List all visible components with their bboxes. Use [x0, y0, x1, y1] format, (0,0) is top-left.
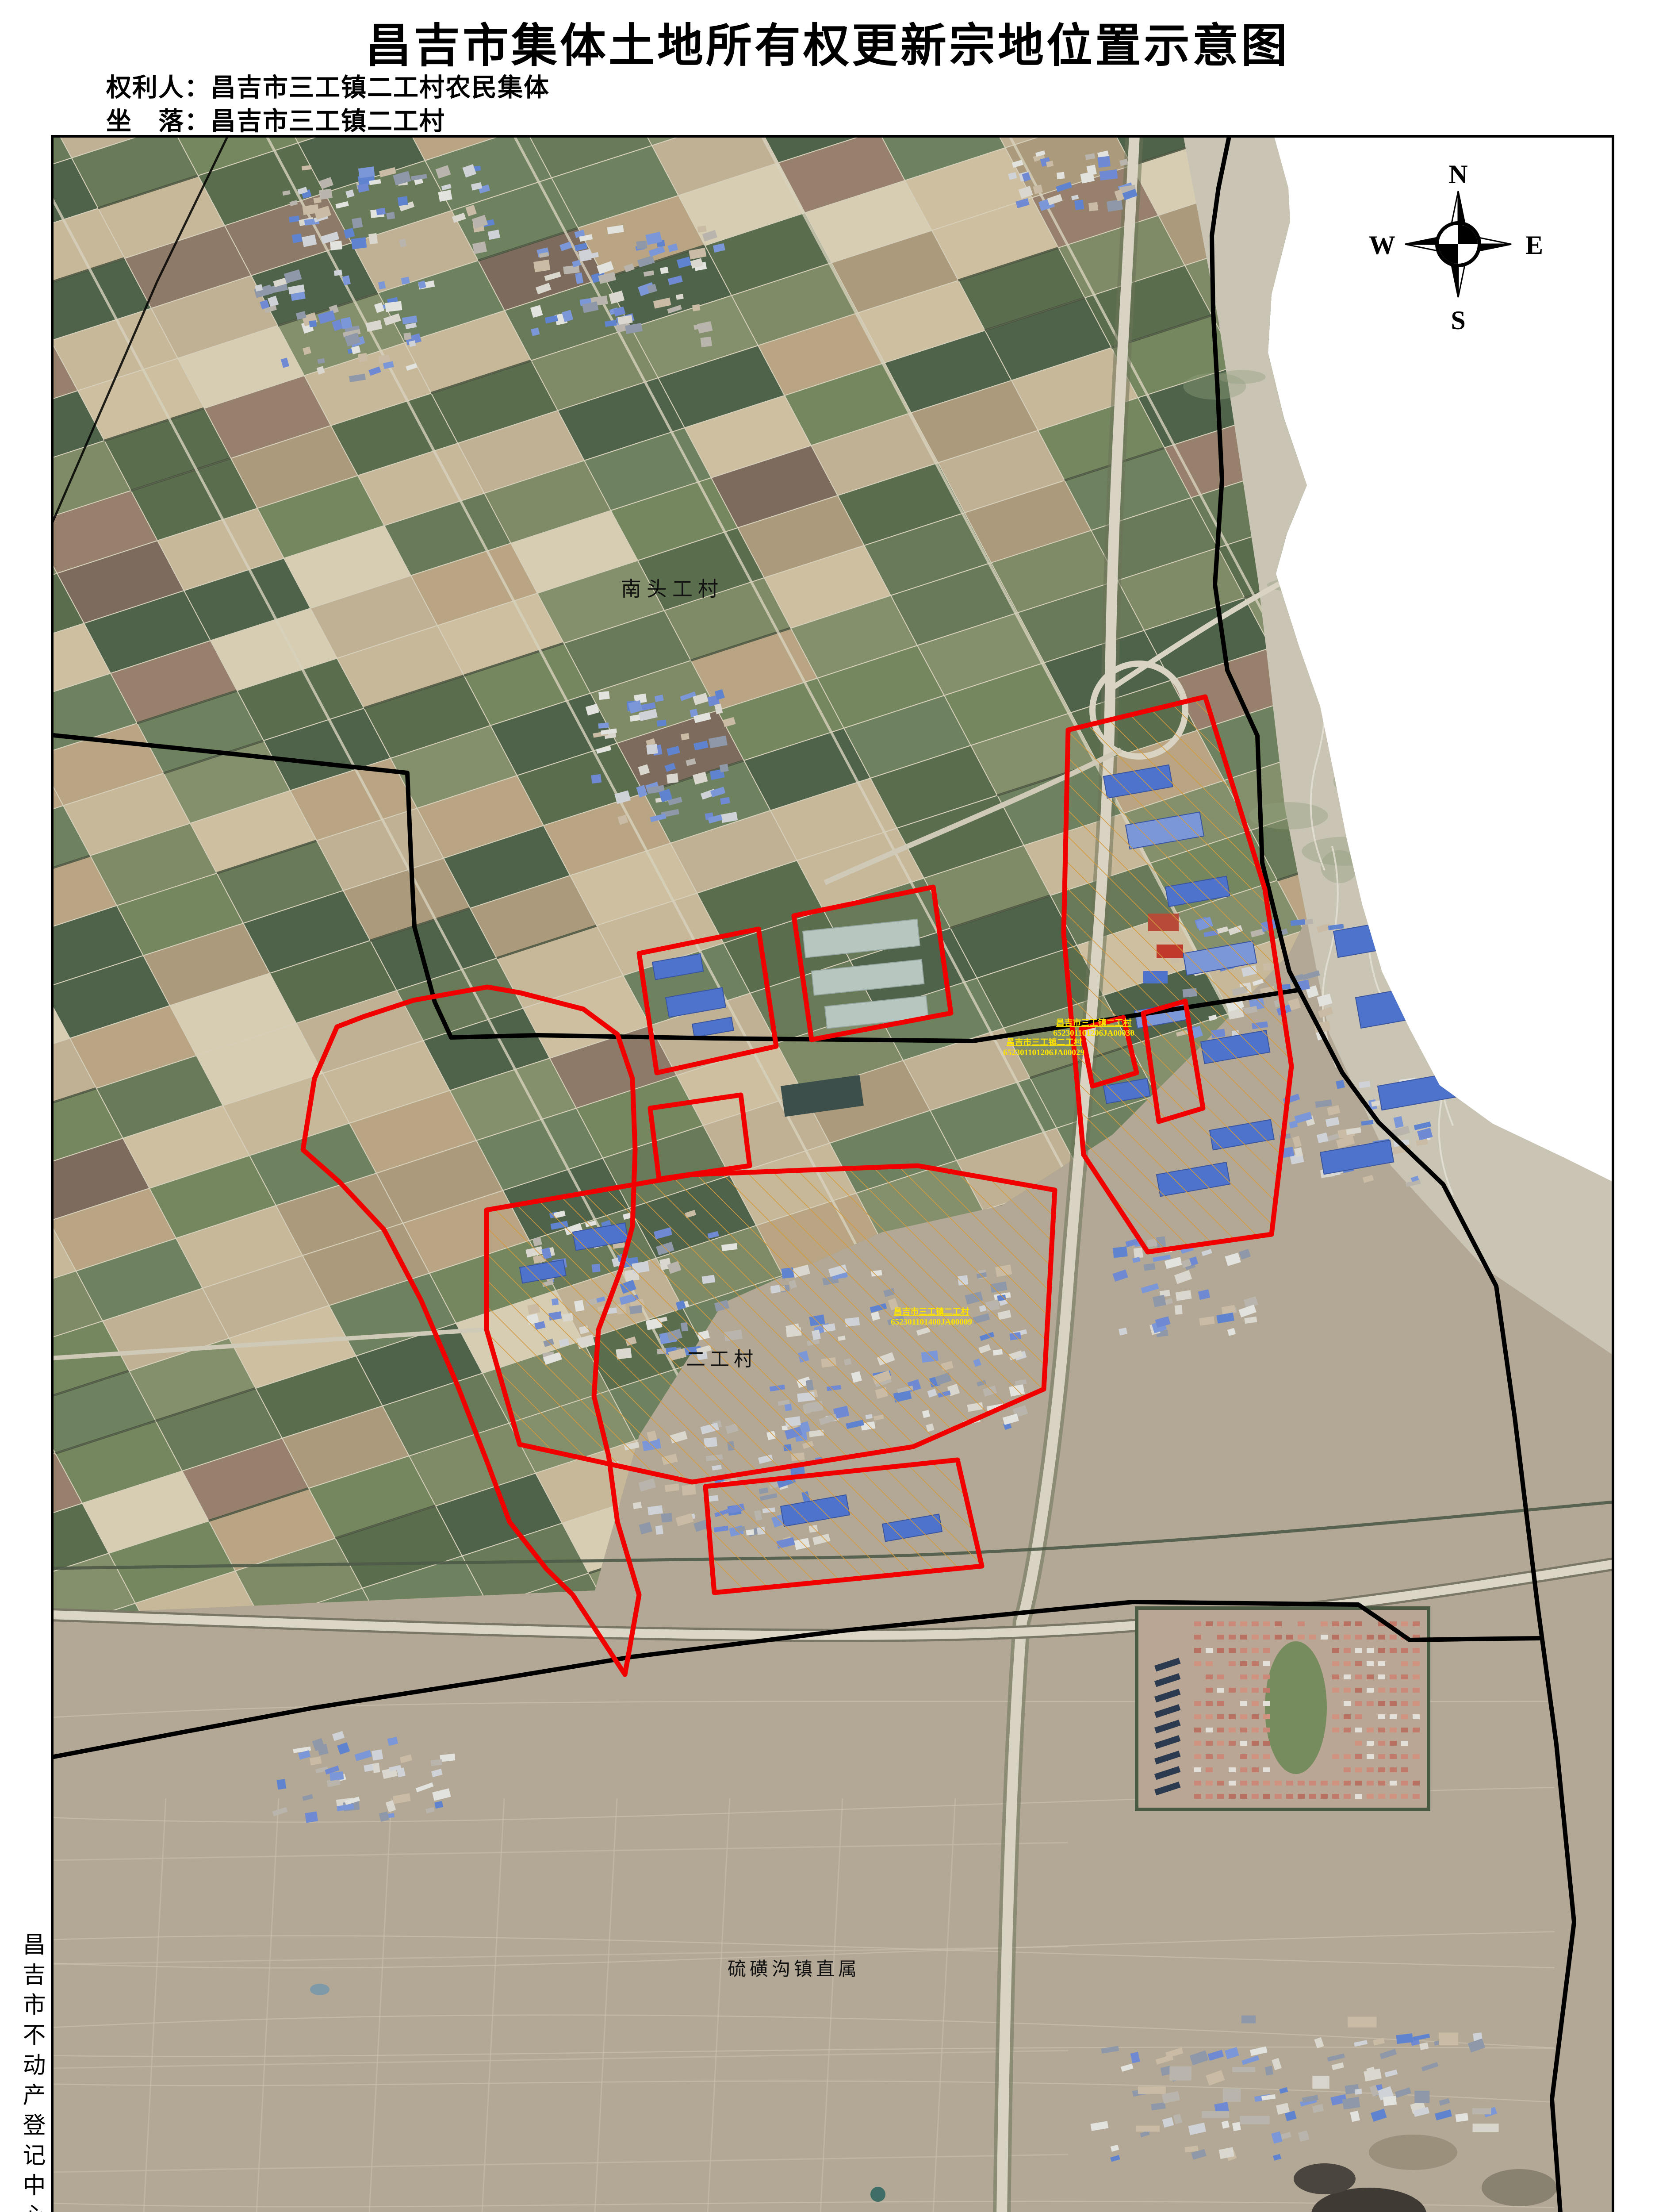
svg-text:昌吉市三工镇二工村: 昌吉市三工镇二工村	[1056, 1018, 1131, 1028]
svg-text:652301101206JA00029: 652301101206JA00029	[1003, 1048, 1084, 1057]
compass-w: W	[1369, 230, 1395, 260]
map-panel: 南头工村 二工村 硫磺沟镇直属 昌吉市三工镇二工村 652301101206JA…	[51, 135, 1614, 2212]
satellite-map: 南头工村 二工村 硫磺沟镇直属 昌吉市三工镇二工村 652301101206JA…	[51, 135, 1614, 2212]
label-village-main: 二工村	[686, 1348, 758, 1370]
compass-e: E	[1525, 230, 1543, 260]
svg-text:昌吉市三工镇二工村: 昌吉市三工镇二工村	[893, 1306, 969, 1317]
page-title: 昌吉市集体土地所有权更新宗地位置示意图	[0, 8, 1655, 75]
compass-s: S	[1451, 306, 1465, 335]
pond	[870, 2187, 885, 2202]
reservoir	[310, 1984, 329, 1995]
label-village-north: 南头工村	[621, 578, 724, 600]
location-line: 坐 落：昌吉市三工镇二工村	[106, 101, 445, 137]
side-agency-text: 昌吉市不动产登记中心	[15, 1932, 48, 2212]
housing-development	[1137, 1608, 1429, 1809]
compass-n: N	[1448, 160, 1467, 189]
svg-text:652301101400JA00009: 652301101400JA00009	[891, 1317, 972, 1327]
svg-text:652301101206JA00030: 652301101206JA00030	[1053, 1029, 1134, 1038]
label-township-south: 硫磺沟镇直属	[728, 1959, 860, 1980]
rights-holder-line: 权利人：昌吉市三工镇二工村农民集体	[106, 67, 550, 104]
svg-text:昌吉市三工镇二工村: 昌吉市三工镇二工村	[1006, 1037, 1082, 1047]
